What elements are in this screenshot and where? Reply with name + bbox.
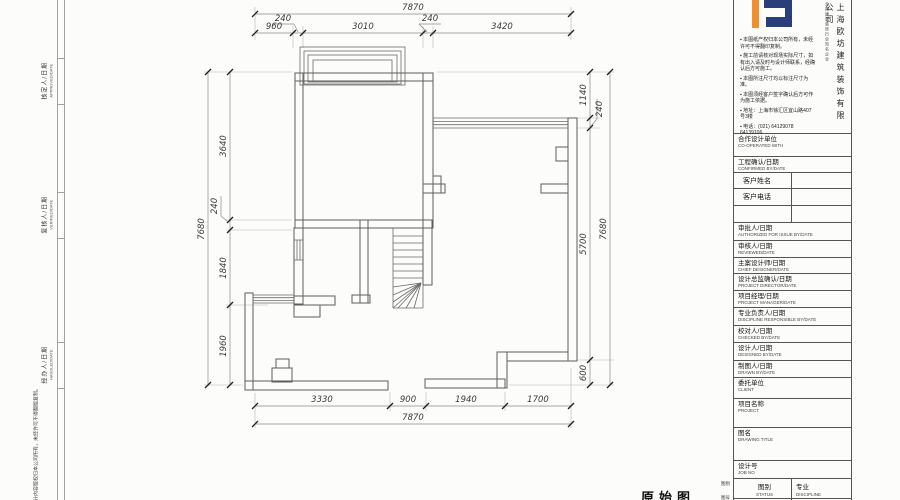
wall — [568, 118, 577, 361]
wall — [425, 379, 505, 388]
border-stamp: 经办人/日期 HANDLED/DATE — [42, 330, 53, 400]
dim-label: 240 — [595, 101, 605, 117]
plan-detail-line — [406, 283, 421, 308]
dim-label: 1960 — [219, 335, 229, 357]
tb-row-cn: 图名 — [738, 430, 851, 437]
border-stamp: 复核人/日期 VERIFIED/DATE — [42, 180, 53, 250]
status-cn: 图别 — [758, 484, 771, 491]
company-logo-icon — [752, 0, 796, 30]
tb-row-cn: 工程确认/日期 — [738, 159, 851, 166]
company-notes: ▪ 本图纸产权归本公司所有，未经许可不得翻印复制。 ▪ 施工前请核对现场实际尺寸… — [740, 37, 816, 140]
title-block-header: 上海欧坊建筑装饰有限公司 全国建筑装饰行业知名企业 ▪ 本图纸产权归本公司所有，… — [734, 0, 851, 134]
tb-row-drawn: 制图人/日期 DRAWN BY/DATE — [734, 361, 851, 378]
outside-label-tubie: 图别 — [721, 481, 730, 487]
wall — [295, 73, 433, 81]
border-tick — [57, 104, 65, 105]
dim-label: 3420 — [491, 22, 513, 32]
discipline-cell: 专业 DISCIPLINE — [792, 479, 851, 498]
leader-line — [221, 216, 228, 222]
tb-row-en: CO-OPERATED WITH — [738, 143, 851, 148]
border-line — [64, 0, 65, 500]
dim-label: 7680 — [197, 218, 207, 240]
tb-row-cn: 主案设计师/日期 — [738, 260, 851, 267]
wall — [541, 184, 568, 193]
tb-row-cn: 设计总监确认/日期 — [738, 276, 851, 283]
wall — [360, 220, 368, 303]
border-stamp-en: VERIFIED/DATE — [49, 180, 54, 250]
company-tagline: 全国建筑装饰行业知名企业 — [824, 2, 830, 112]
tb-row-cn: 审核人/日期 — [738, 243, 851, 250]
wall — [294, 228, 303, 304]
blank-cell — [792, 206, 851, 222]
border-stamp: 核定人/日期 APPROVED/DATE — [42, 46, 53, 116]
dim-label: 7870 — [402, 3, 424, 13]
border-line — [57, 0, 58, 500]
status-en: STATUS — [756, 492, 773, 497]
bay-window — [300, 47, 405, 85]
tb-row-cn: 项目名称 — [738, 401, 851, 408]
tb-row-en: DESIGNED BY/DATE — [738, 352, 851, 357]
bay-window — [304, 51, 401, 84]
wall — [245, 293, 253, 390]
wall — [423, 184, 445, 193]
wall — [272, 368, 292, 382]
tb-row-en: PROJECT MANAGER/DATE — [738, 300, 851, 305]
client-name-label: 客户姓名 — [734, 173, 792, 188]
tb-row-en: JOB NO — [738, 470, 851, 475]
wall — [245, 381, 388, 390]
tb-row-checked: 校对人/日期 CHECKED BY/DATE — [734, 326, 851, 343]
dim-label: 240 — [210, 198, 220, 214]
tb-row-en: CLIENT — [738, 387, 851, 392]
status-cell: 图别 STATUS — [734, 479, 792, 498]
wall — [295, 73, 303, 228]
tb-row-chief-designer: 主案设计师/日期 CHIEF DESIGNER/DATE — [734, 258, 851, 274]
tb-row-en: REVIEWED/DATE — [738, 250, 851, 255]
dim-label: 240 — [422, 14, 438, 24]
tb-row-authorized: 审批人/日期 AUTHORIZED FOR ISSUE BY/DATE — [734, 223, 851, 241]
tb-row-cooperated: 合作设计单位 CO-OPERATED WITH — [734, 134, 851, 157]
dim-label: 1700 — [527, 395, 549, 405]
border-stamp-en: APPROVED/DATE — [49, 46, 54, 116]
dim-label: 7870 — [402, 413, 424, 423]
outside-label-tuhao: 图号 — [721, 495, 730, 500]
wall — [507, 352, 568, 361]
tb-row-job-no: 设计号 JOB NO — [734, 461, 851, 479]
tb-row-en: DRAWING TITLE — [738, 437, 851, 442]
bay-window — [313, 60, 392, 81]
dim-label: 600 — [579, 365, 589, 381]
tb-row-en: PROJECT DIRECTOR/DATE — [738, 283, 851, 288]
wall — [423, 228, 432, 285]
drawing-sheet: 7870960240301024034203640240184019607680… — [0, 0, 900, 500]
note-line: ▪ 本图所注尺寸均以标注尺寸为准。 — [740, 76, 816, 89]
tb-row-cn: 制图人/日期 — [738, 363, 851, 370]
dim-label: 3330 — [311, 395, 333, 405]
tb-row-en: CHIEF DESIGNER/DATE — [738, 267, 851, 272]
tb-row-en: DISCIPLINE RESPONSIBLE BY/DATE — [738, 317, 851, 322]
discipline-cn: 专业 — [796, 484, 851, 491]
copyright-note: 本图纸设计内容版权归本公司所有，未经许可不得翻版复制。 — [33, 384, 40, 500]
tb-row-en: AUTHORIZED FOR ISSUE BY/DATE — [738, 232, 851, 237]
tb-row-designed: 设计人/日期 DESIGNED BY/DATE — [734, 343, 851, 361]
tb-row-reviewed: 审核人/日期 REVIEWED/DATE — [734, 241, 851, 258]
tb-row-drawing-title: 图名 DRAWING TITLE — [734, 428, 851, 461]
tb-row-en: DRAWN BY/DATE — [738, 370, 851, 375]
tb-row-client-name: 客户姓名 — [734, 173, 851, 189]
dim-label: 1140 — [579, 84, 589, 106]
bay-window — [308, 55, 397, 82]
company-address: ▪ 地址：上海市徐汇区宜山路407号3楼 — [740, 108, 816, 121]
wall — [352, 295, 370, 303]
tb-row-en: CONFIRMED BY/DATE — [738, 166, 851, 171]
dim-label: 900 — [400, 395, 416, 405]
dim-label: 3640 — [219, 135, 229, 157]
dim-label: 7680 — [599, 218, 609, 240]
wall — [556, 147, 568, 161]
tb-row-cn: 专业负责人/日期 — [738, 310, 851, 317]
tb-row-cn: 项目经理/日期 — [738, 293, 851, 300]
wall — [295, 220, 432, 228]
dim-label: 5700 — [579, 233, 589, 255]
tb-row-cn: 校对人/日期 — [738, 328, 851, 335]
tb-row-en: PROJECT — [738, 408, 851, 413]
note-line: ▪ 施工前请核对现场实际尺寸，如有出入请及时与设计师联系，经确认后方可施工。 — [740, 53, 816, 73]
dim-label: 1840 — [219, 257, 229, 279]
tb-row-cn: 设计人/日期 — [738, 345, 851, 352]
client-name-value — [792, 173, 851, 188]
dim-label: 3010 — [352, 22, 374, 32]
note-line: ▪ 本图须经客户签字确认后方可作为施工依据。 — [740, 92, 816, 105]
border-tick — [57, 388, 65, 389]
drawing-caption: 原始图 — [641, 487, 695, 500]
tb-row-cn: 合作设计单位 — [738, 136, 851, 143]
tb-row-blank — [734, 206, 851, 223]
title-block: 上海欧坊建筑装饰有限公司 全国建筑装饰行业知名企业 ▪ 本图纸产权归本公司所有，… — [733, 0, 852, 500]
client-phone-value — [792, 189, 851, 205]
tb-row-discipline-responsible: 专业负责人/日期 DISCIPLINE RESPONSIBLE BY/DATE — [734, 308, 851, 326]
tb-row-cn: 设计号 — [738, 463, 851, 470]
wall — [423, 73, 433, 228]
blank-cell — [734, 206, 792, 222]
tb-row-project-manager: 项目经理/日期 PROJECT MANAGER/DATE — [734, 291, 851, 308]
wall — [294, 305, 320, 317]
leader-line — [591, 119, 597, 126]
tb-row-project-director: 设计总监确认/日期 PROJECT DIRECTOR/DATE — [734, 274, 851, 291]
tb-row-cn: 委托单位 — [738, 380, 851, 387]
tb-row-confirmed: 工程确认/日期 CONFIRMED BY/DATE — [734, 157, 851, 173]
tb-row-cn: 审批人/日期 — [738, 225, 851, 232]
tb-row-project-name: 项目名称 PROJECT — [734, 399, 851, 428]
discipline-en: DISCIPLINE — [796, 492, 851, 497]
note-line: ▪ 本图纸产权归本公司所有，未经许可不得翻印复制。 — [740, 37, 816, 50]
border-tick — [57, 342, 65, 343]
wall — [276, 359, 289, 368]
border-tick — [57, 58, 65, 59]
border-tick — [57, 238, 65, 239]
tb-row-client-phone: 客户电话 — [734, 189, 851, 206]
tb-row-status-discipline: 图别 STATUS 专业 DISCIPLINE — [734, 479, 851, 499]
dim-label: 1940 — [455, 395, 477, 405]
dim-label: 240 — [275, 14, 291, 24]
border-stamp-en: HANDLED/DATE — [49, 330, 54, 400]
client-phone-label: 客户电话 — [734, 189, 792, 205]
tb-row-client: 委托单位 CLIENT — [734, 378, 851, 399]
tb-row-en: CHECKED BY/DATE — [738, 335, 851, 340]
border-tick — [57, 192, 65, 193]
